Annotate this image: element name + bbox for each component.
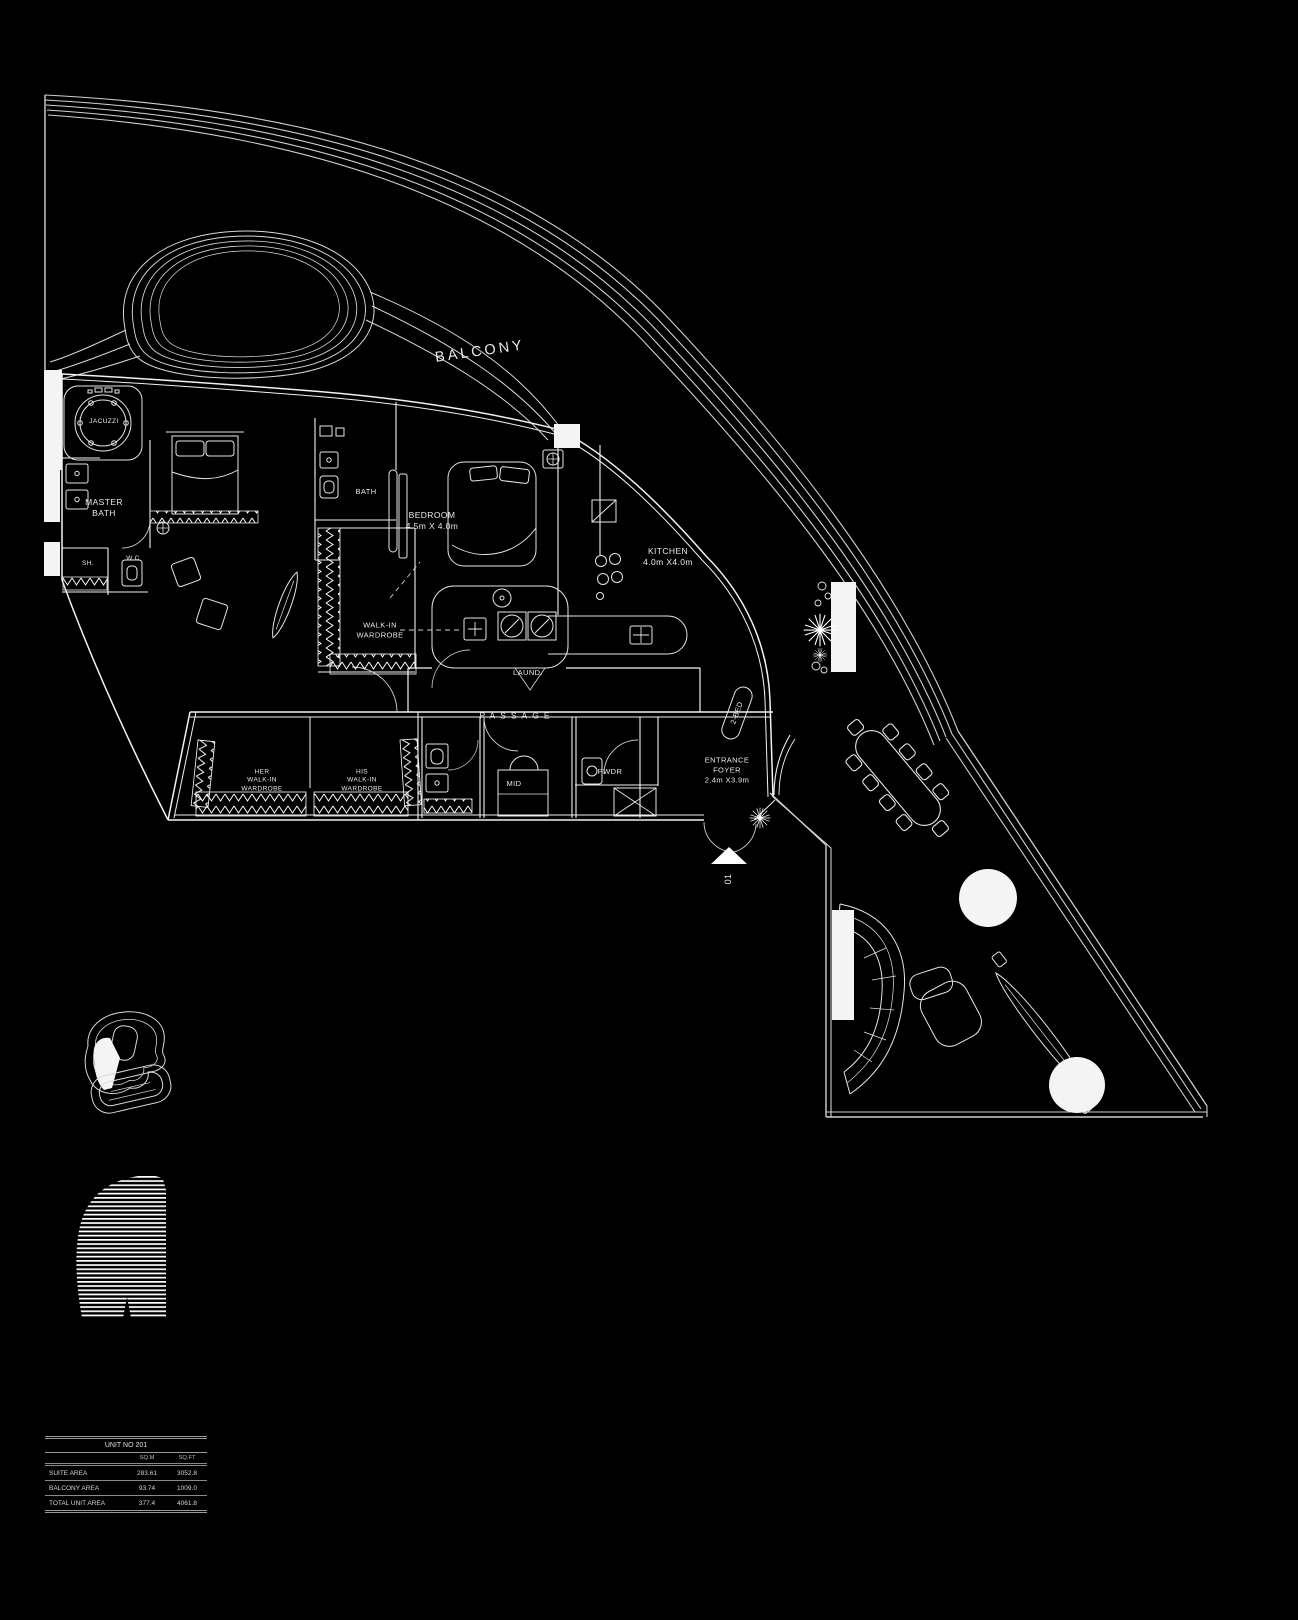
suite-area-sqft: 3052.8 [169,1470,205,1477]
area-table-header-sqm: SQ.M [125,1455,169,1461]
area-table-header-sqft: SQ.FT [169,1455,205,1461]
area-table-row-suite: SUITE AREA 283.61 3052.8 [45,1466,207,1481]
foyer-line1: ENTRANCE [705,755,749,765]
kitchen-label: KITCHEN 4.0m X4.0m [643,546,693,568]
area-table-title: UNIT NO 201 [45,1439,207,1453]
jacuzzi-label: JACUZZI [89,418,119,426]
suite-area-sqm: 283.61 [125,1470,169,1477]
master-bath-line1: MASTER [85,497,123,508]
walkin-line2: WARDROBE [356,630,403,640]
floorplan-page: BALCONY JACUZZI MASTER BATH SH. W.C BATH… [0,0,1298,1620]
passage-label: PASSAGE [480,710,555,721]
total-area-sqm: 377.4 [125,1500,169,1507]
her-line3: WARDROBE [241,785,282,793]
bedroom-label: BEDROOM 4.5m X 4.0m [406,510,459,532]
his-wardrobe-label: HIS WALK-IN WARDROBE [341,768,382,793]
suite-area-label: SUITE AREA [47,1470,125,1477]
area-table-row-balcony: BALCONY AREA 93.74 1009.0 [45,1481,207,1496]
area-table-header-row: SQ.M SQ.FT [45,1453,207,1466]
master-bath-label: MASTER BATH [85,497,123,519]
kitchen-name: KITCHEN [643,546,693,557]
kitchen-fixtures [548,500,687,654]
total-area-label: TOTAL UNIT AREA [47,1500,125,1507]
building-elevation [70,1172,172,1322]
kitchen-dims: 4.0m X4.0m [643,557,693,568]
unit-area-table: UNIT NO 201 SQ.M SQ.FT SUITE AREA 283.61… [45,1436,207,1513]
her-wardrobe-label: HER WALK-IN WARDROBE [241,768,282,793]
her-line2: WALK-IN [241,777,282,785]
balcony-area-sqft: 1009.0 [169,1485,205,1492]
foyer-line2: FOYER [705,765,749,775]
entrance-foyer-label: ENTRANCE FOYER 2.4m X3.9m [705,755,749,784]
bedroom-name: BEDROOM [406,510,459,521]
dining-table [829,704,968,853]
bedroom-dims: 4.5m X 4.0m [406,521,459,532]
entry-number-label: 01 [723,874,735,885]
walkin-line1: WALK-IN [356,620,403,630]
total-area-sqft: 4061.8 [169,1500,205,1507]
his-line1: HIS [341,768,382,776]
balcony-area-label: BALCONY AREA [47,1485,125,1492]
bath-label: BATH [355,487,376,497]
laundry-fixtures [432,586,568,668]
powder-label: PWDR [598,767,623,777]
wc-label: W.C [126,555,139,563]
his-line2: WALK-IN [341,777,382,785]
bedroom2-furniture [399,450,563,566]
area-table-row-total: TOTAL UNIT AREA 377.4 4061.8 [45,1496,207,1513]
mid-label: MID [507,779,522,789]
shower-label: SH. [82,560,94,568]
wardrobe-hatching [191,528,472,816]
his-line3: WARDROBE [341,785,382,793]
floorplan-linework [0,0,1298,1620]
balcony-area-sqm: 93.74 [125,1485,169,1492]
master-bath-line2: BATH [85,508,123,519]
laundry-label: LAUND. [513,668,543,678]
her-line1: HER [241,768,282,776]
key-plan [85,1012,174,1117]
plant-icons [750,582,837,828]
master-bedroom-furniture [150,432,303,640]
entry-arrow [711,847,747,864]
foyer-dims: 2.4m X3.9m [705,775,749,785]
walkin-wardrobe-label: WALK-IN WARDROBE [356,620,403,640]
master-bath-fixtures [63,464,142,590]
